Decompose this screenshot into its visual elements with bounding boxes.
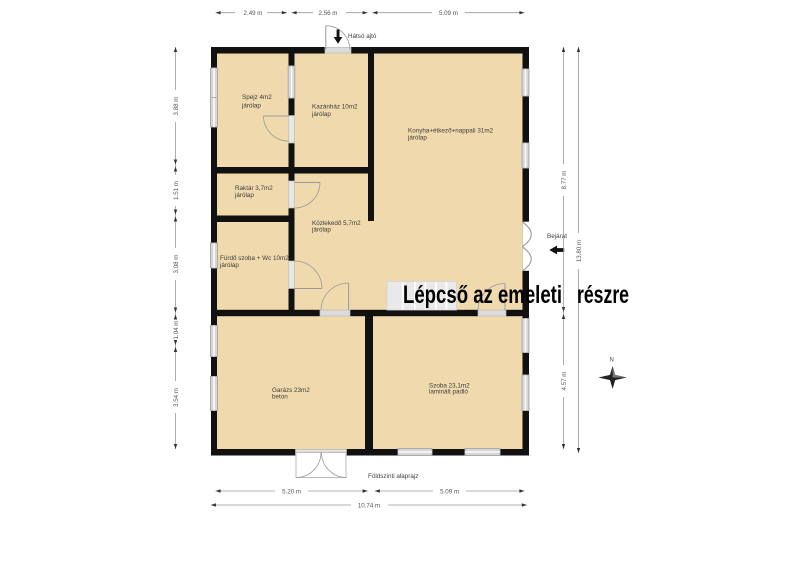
- svg-text:Hátsó ajtó: Hátsó ajtó: [348, 33, 377, 40]
- svg-text:Bejárat: Bejárat: [547, 233, 567, 240]
- svg-text:3.54 m: 3.54 m: [173, 388, 180, 407]
- svg-text:3.88 m: 3.88 m: [173, 97, 180, 116]
- svg-text:Spejz 4m2: Spejz 4m2: [242, 94, 272, 101]
- svg-text:1.51 m: 1.51 m: [173, 181, 180, 200]
- svg-text:3.08 m: 3.08 m: [173, 255, 180, 274]
- svg-text:laminált padló: laminált padló: [429, 389, 468, 396]
- svg-text:Lépcső az emeleti: Lépcső az emeleti: [403, 281, 562, 309]
- svg-text:Fürdő szoba + Wc 10m2: Fürdő szoba + Wc 10m2: [220, 255, 289, 262]
- svg-text:járólap: járólap: [234, 192, 254, 199]
- svg-text:N: N: [610, 358, 614, 364]
- svg-text:8.77 m: 8.77 m: [561, 171, 568, 190]
- svg-text:4.57 m: 4.57 m: [561, 372, 568, 391]
- svg-text:Raktár 3,7m2: Raktár 3,7m2: [235, 185, 273, 192]
- svg-text:járólap: járólap: [219, 262, 239, 269]
- svg-text:2.56 m: 2.56 m: [319, 10, 338, 17]
- svg-text:2.49 m: 2.49 m: [244, 10, 263, 17]
- svg-text:járólap: járólap: [407, 135, 427, 142]
- svg-text:Kazánház 10m2: Kazánház 10m2: [312, 104, 358, 111]
- svg-text:Konyha+étkező+nappali 31m2: Konyha+étkező+nappali 31m2: [408, 128, 494, 135]
- svg-text:járólap: járólap: [241, 103, 261, 110]
- svg-text:10.74 m: 10.74 m: [358, 503, 380, 510]
- svg-text:részre: részre: [577, 281, 629, 309]
- svg-text:5.09 m: 5.09 m: [440, 489, 459, 496]
- svg-text:járólap: járólap: [311, 111, 331, 118]
- svg-text:5.09 m: 5.09 m: [439, 10, 458, 17]
- svg-text:5.20 m: 5.20 m: [282, 489, 301, 496]
- svg-text:1.04 m: 1.04 m: [173, 321, 180, 340]
- svg-text:beton: beton: [272, 394, 288, 401]
- svg-text:Földszinti alaprajz: Földszinti alaprajz: [368, 473, 418, 480]
- svg-text:járólap: járólap: [311, 227, 331, 234]
- svg-text:13.80 m: 13.80 m: [576, 240, 583, 262]
